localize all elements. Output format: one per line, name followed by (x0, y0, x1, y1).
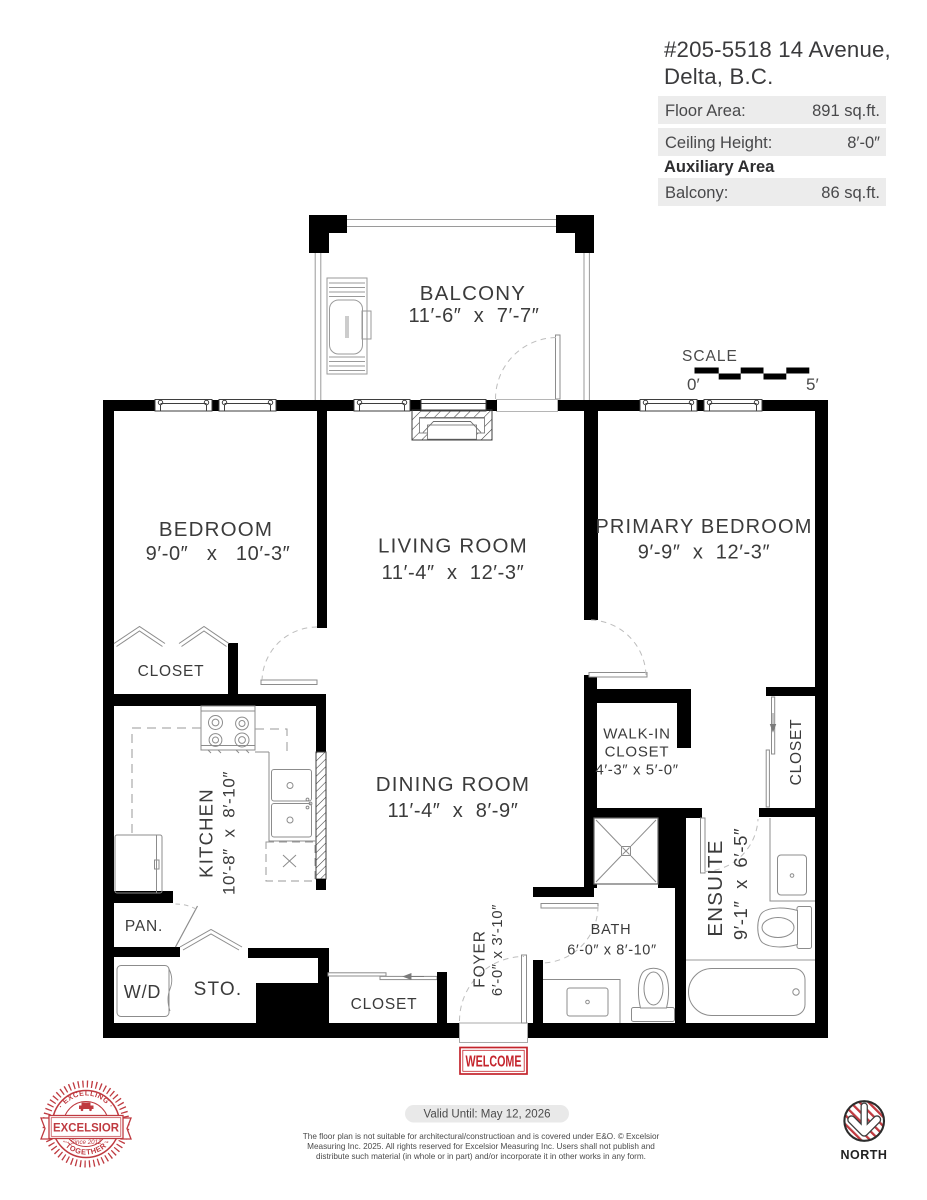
svg-text:ENSUITE: ENSUITE (704, 839, 727, 936)
svg-text:Ceiling Height:: Ceiling Height: (665, 134, 772, 152)
svg-text:11′-4″ x 8′-9″: 11′-4″ x 8′-9″ (388, 800, 519, 822)
svg-text:Floor Area:: Floor Area: (665, 102, 746, 120)
svg-text:BEDROOM: BEDROOM (159, 518, 273, 541)
svg-text:W/D: W/D (124, 982, 161, 1002)
svg-text:9′-1″ x 6′-5″: 9′-1″ x 6′-5″ (730, 828, 751, 940)
svg-text:BATH: BATH (591, 922, 632, 938)
svg-text:0′: 0′ (687, 375, 700, 394)
svg-text:BALCONY: BALCONY (420, 282, 526, 305)
svg-text:CLOSET: CLOSET (788, 719, 805, 786)
svg-text:9′-9″ x 12′-3″: 9′-9″ x 12′-3″ (638, 542, 770, 564)
svg-text:STO.: STO. (194, 979, 243, 1000)
svg-text:Auxiliary Area: Auxiliary Area (664, 158, 775, 176)
svg-text:8′-0″: 8′-0″ (847, 134, 880, 152)
svg-text:6′-0″ x 3′-10″: 6′-0″ x 3′-10″ (489, 904, 506, 996)
svg-text:WELCOME: WELCOME (466, 1054, 522, 1071)
svg-text:Measuring Inc. 2025. All right: Measuring Inc. 2025. All rights reserved… (307, 1142, 655, 1151)
svg-text:∼ Since 2012 ∼: ∼ Since 2012 ∼ (64, 1139, 110, 1146)
svg-text:distribute such material (in w: distribute such material (in whole or in… (316, 1152, 646, 1161)
svg-text:SCALE: SCALE (682, 348, 738, 365)
svg-text:CLOSET: CLOSET (605, 744, 670, 761)
svg-text:The floor plan is not suitable: The floor plan is not suitable for archi… (303, 1132, 660, 1141)
svg-text:EXCELSIOR: EXCELSIOR (53, 1121, 119, 1135)
svg-text:Delta, B.C.: Delta, B.C. (664, 64, 773, 89)
svg-text:891 sq.ft.: 891 sq.ft. (812, 102, 880, 120)
svg-text:PAN.: PAN. (125, 918, 163, 935)
svg-text:4′-3″ x 5′-0″: 4′-3″ x 5′-0″ (595, 762, 678, 779)
svg-text:WALK-IN: WALK-IN (603, 726, 671, 743)
svg-text:PRIMARY BEDROOM: PRIMARY BEDROOM (595, 516, 812, 538)
svg-text:DINING ROOM: DINING ROOM (376, 773, 530, 796)
svg-text:Valid Until: May 12, 2026: Valid Until: May 12, 2026 (424, 1109, 551, 1121)
svg-text:86 sq.ft.: 86 sq.ft. (821, 184, 880, 202)
svg-text:6′-0″ x 8′-10″: 6′-0″ x 8′-10″ (567, 943, 656, 959)
svg-text:LIVING ROOM: LIVING ROOM (378, 535, 528, 558)
svg-text:10′-8″ x 8′-10″: 10′-8″ x 8′-10″ (220, 771, 239, 895)
svg-text:11′-6″ x 7′-7″: 11′-6″ x 7′-7″ (409, 305, 540, 327)
svg-text:5′: 5′ (806, 375, 819, 394)
svg-text:KITCHEN: KITCHEN (196, 788, 217, 878)
svg-text:NORTH: NORTH (841, 1148, 888, 1162)
svg-text:FOYER: FOYER (472, 930, 489, 987)
svg-text:9′-0″ x 10′-3″: 9′-0″ x 10′-3″ (146, 543, 291, 565)
svg-text:#205-5518 14 Avenue,: #205-5518 14 Avenue, (664, 37, 891, 62)
svg-text:CLOSET: CLOSET (351, 996, 418, 1013)
svg-text:11′-4″ x 12′-3″: 11′-4″ x 12′-3″ (382, 562, 525, 584)
svg-text:CLOSET: CLOSET (138, 663, 205, 680)
svg-text:Balcony:: Balcony: (665, 184, 728, 202)
